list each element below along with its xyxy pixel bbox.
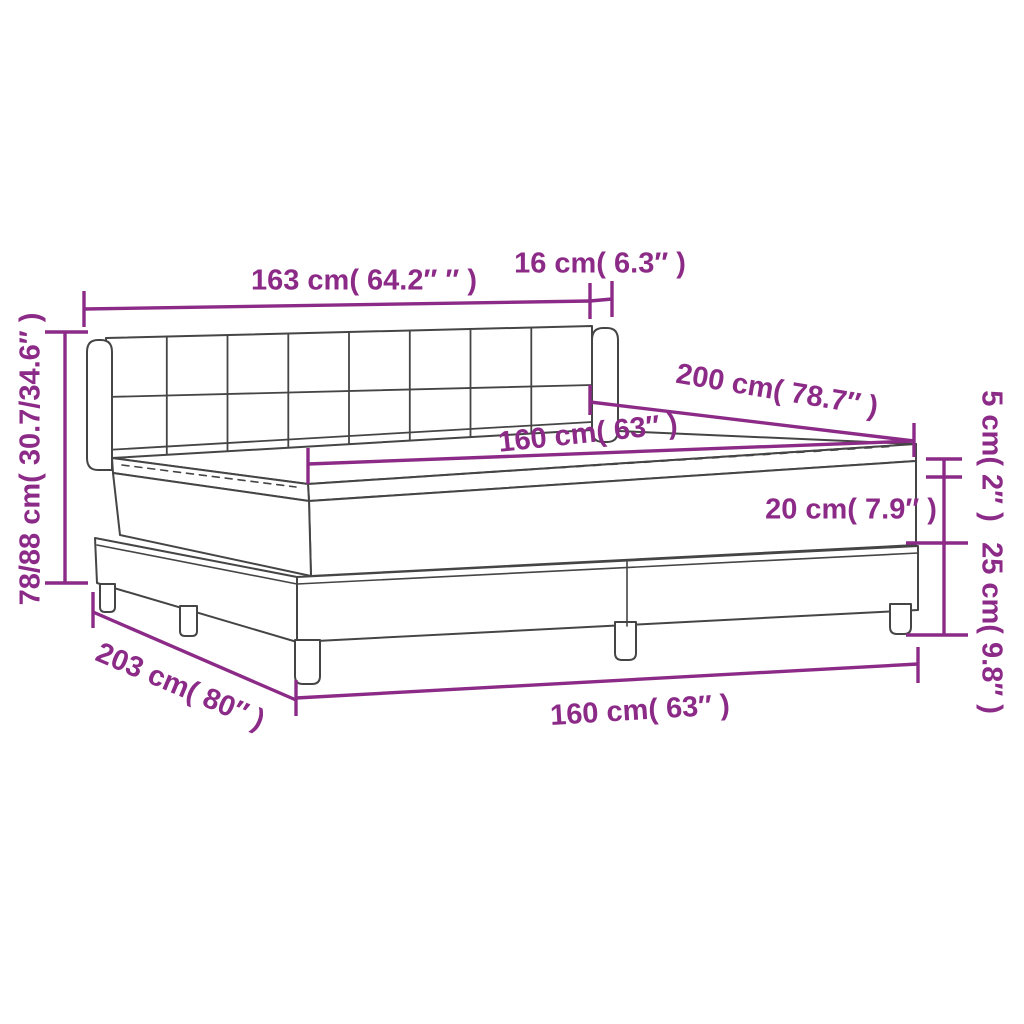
bed-leg: [100, 584, 115, 612]
dim-label-headboard-width: 163 cm( 64.2″ ″ ): [251, 265, 477, 298]
bed-leg: [180, 606, 197, 636]
bed-dimension-diagram: 163 cm( 64.2″ ″ ) 16 cm( 6.3″ ) 200 cm( …: [0, 0, 1024, 1024]
headboard-left-wing: [87, 340, 112, 470]
bed-leg: [890, 604, 911, 634]
dim-label-total-height: 78/88 cm( 30.7/34.6″ ): [15, 313, 48, 606]
dim-label-base-height: 25 cm( 9.8″ ): [975, 542, 1008, 714]
bed-leg: [295, 640, 320, 684]
dim-label-topper-height: 5 cm( 2″ ): [975, 390, 1008, 522]
bed-leg: [615, 622, 636, 660]
dim-label-mattress-height: 20 cm( 7.9″ ): [765, 494, 937, 527]
dim-label-headboard-side-depth: 16 cm( 6.3″ ): [514, 248, 686, 281]
